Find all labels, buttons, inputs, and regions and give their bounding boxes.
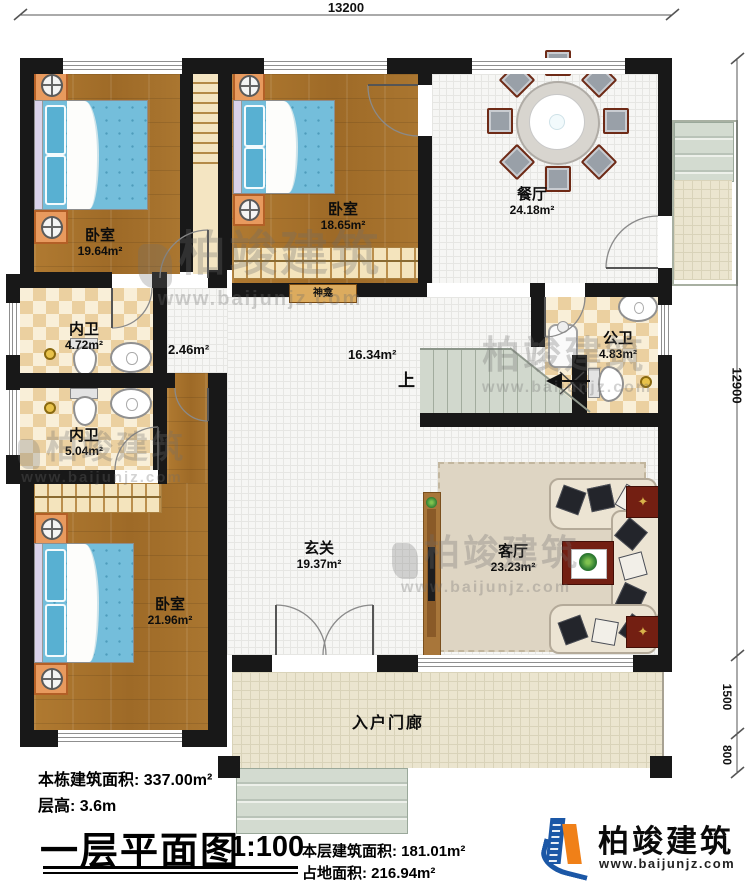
stair-up-label: 上 xyxy=(398,366,415,391)
side-steps xyxy=(674,122,734,182)
wall xyxy=(208,373,227,747)
bed-sheet xyxy=(67,101,99,209)
side-landing xyxy=(674,180,732,280)
side-porch xyxy=(672,120,738,286)
corridor-floor xyxy=(167,373,210,483)
logo-icon xyxy=(538,814,590,878)
bed-sheet xyxy=(67,544,99,662)
nightstand xyxy=(233,70,265,102)
logo: 柏竣建筑 www.baijunjz.com xyxy=(520,806,746,886)
table-center xyxy=(549,114,565,130)
window-top-bedroom1 xyxy=(63,58,182,74)
wall xyxy=(420,413,672,427)
logo-url: www.baijunjz.com xyxy=(599,856,735,871)
window-bath2 xyxy=(6,390,20,455)
title-underline-thin xyxy=(43,872,298,874)
closet-shelves xyxy=(193,74,218,170)
tv xyxy=(428,547,435,601)
towel-knob xyxy=(44,402,56,414)
front-steps xyxy=(236,768,408,834)
room-label-bedroom1: 卧室 19.64m² xyxy=(40,228,160,258)
wall xyxy=(6,274,20,303)
wall xyxy=(153,288,167,373)
pillow xyxy=(45,155,66,204)
toilet-bath2 xyxy=(70,388,96,426)
bed-bedroom1 xyxy=(34,100,148,210)
room-label-dining: 餐厅 24.18m² xyxy=(472,187,592,217)
nightstand xyxy=(34,513,68,545)
plant xyxy=(426,497,437,508)
nightstand xyxy=(34,663,68,695)
headboard xyxy=(35,101,43,209)
dim-right-steps: 800 xyxy=(720,735,734,775)
window-living xyxy=(418,655,633,672)
logo-name: 柏竣建筑 xyxy=(598,816,734,861)
pillow xyxy=(244,105,265,148)
nightstand xyxy=(233,194,265,226)
wall xyxy=(153,388,167,470)
pillow xyxy=(45,549,66,603)
wardrobe-bedroom2 xyxy=(233,247,420,279)
porch-pillar xyxy=(650,756,672,778)
wall xyxy=(20,272,112,288)
headboard xyxy=(234,101,242,193)
wall xyxy=(6,470,115,484)
wall xyxy=(152,272,167,288)
footprint-area: 占地面积: 216.94m² xyxy=(302,862,435,883)
room-label-foyer: 玄关 19.37m² xyxy=(259,541,379,571)
wall xyxy=(218,74,232,270)
sink-bath2 xyxy=(110,388,152,419)
wall xyxy=(232,655,272,672)
room-label-porch: 入户门廊 xyxy=(288,715,488,733)
dim-right-main: 12900 xyxy=(730,361,745,411)
wall xyxy=(658,58,672,216)
wall xyxy=(418,136,432,283)
room-label-bedroom3: 卧室 21.96m² xyxy=(110,597,230,627)
window-bedroom3 xyxy=(58,730,182,747)
wall xyxy=(531,297,545,347)
side-table: ✦ xyxy=(626,486,660,518)
wall xyxy=(418,74,432,85)
dining-table xyxy=(516,81,600,165)
window-top-dining xyxy=(472,58,625,74)
plant xyxy=(579,553,597,571)
room-label-living: 客厅 23.23m² xyxy=(453,544,573,574)
toilet-public-bath xyxy=(588,364,622,400)
wall xyxy=(20,730,58,747)
dim-top-width: 13200 xyxy=(246,0,446,15)
wall xyxy=(658,268,672,305)
floor-plan-canvas: ✦ ✦ xyxy=(0,0,750,892)
wall xyxy=(658,355,672,660)
wall xyxy=(180,74,193,272)
hall-mid-area: 16.34m² xyxy=(348,347,396,362)
tv-cabinet xyxy=(423,492,441,656)
room-label-bath2: 内卫 5.04m² xyxy=(40,428,128,458)
hall-small-area: 2.46m² xyxy=(168,342,209,357)
bed-bedroom2 xyxy=(233,100,335,194)
wall xyxy=(182,58,264,74)
pillow xyxy=(45,604,66,658)
wardrobe-bedroom3 xyxy=(34,483,162,513)
floor-area: 本层建筑面积: 181.01m² xyxy=(302,840,465,861)
side-table: ✦ xyxy=(626,616,660,648)
wall xyxy=(158,470,167,484)
dining-chair xyxy=(603,108,629,134)
room-label-public-bath: 公卫 4.83m² xyxy=(574,331,662,361)
wall xyxy=(633,655,672,672)
wall xyxy=(6,373,175,388)
wall xyxy=(20,58,34,274)
headboard xyxy=(35,544,43,662)
shrine-niche: 神龛 xyxy=(289,284,357,303)
wall xyxy=(572,355,587,413)
wall xyxy=(208,270,227,288)
vestibule-floor xyxy=(167,288,227,373)
room-label-bath1: 内卫 4.72m² xyxy=(40,322,128,352)
plan-scale: 1:100 xyxy=(230,831,304,864)
floor-height: 层高: 3.6m xyxy=(38,792,116,816)
window-top-bedroom2 xyxy=(264,58,387,74)
wall xyxy=(20,484,34,747)
dining-chair xyxy=(487,108,513,134)
room-label-bedroom2: 卧室 18.65m² xyxy=(283,202,403,232)
bed-sheet xyxy=(266,101,298,193)
porch-pillar xyxy=(218,756,240,778)
towel-knob xyxy=(640,376,652,388)
building-total-area: 本栋建筑面积: 337.00m² xyxy=(38,766,212,790)
window-bath1 xyxy=(6,303,20,355)
pillow xyxy=(244,147,265,190)
wall xyxy=(377,655,418,672)
shrine-label: 神龛 xyxy=(313,288,333,299)
title-underline xyxy=(43,866,298,869)
pillow xyxy=(45,105,66,154)
wall xyxy=(530,283,545,297)
dim-right-porch: 1500 xyxy=(720,677,734,717)
wall xyxy=(387,58,472,74)
